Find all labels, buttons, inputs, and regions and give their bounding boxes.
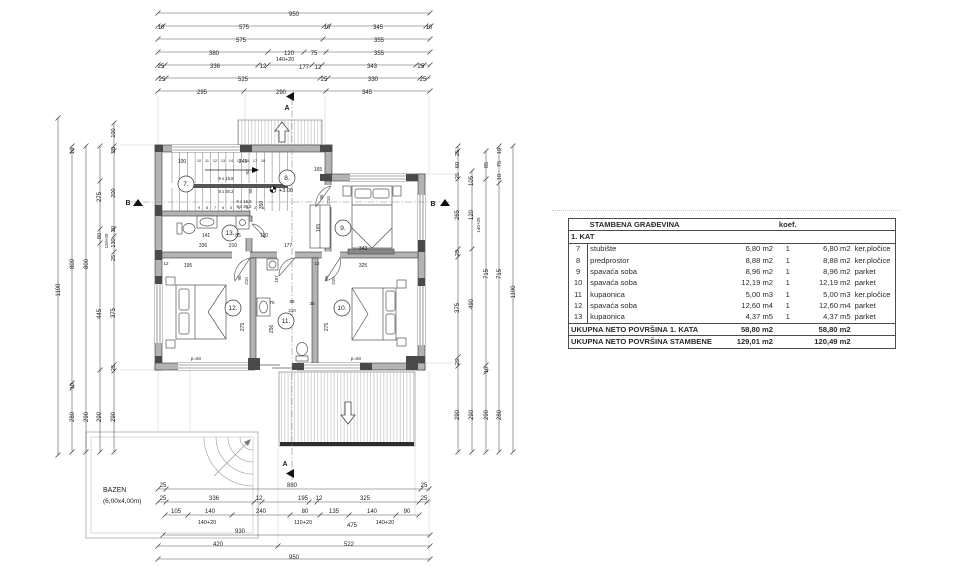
terrace — [279, 372, 415, 446]
dim-label: 120 — [469, 209, 475, 220]
cell-name: kupaonica — [588, 312, 724, 324]
dim-label: 25 — [321, 77, 328, 83]
dim-label: 15 — [237, 159, 241, 163]
dim-label: 375 — [455, 302, 461, 313]
dim-label: 380 — [209, 51, 220, 57]
dim-label: 336 — [210, 64, 221, 70]
table-title-row: STAMBENA GRAĐEVINA koef. — [569, 219, 896, 231]
dim-label: 280 — [497, 409, 503, 420]
dim-label: 92 — [245, 169, 250, 175]
dim-label: 177 — [299, 65, 310, 71]
cell-num: 7 — [569, 243, 588, 255]
dim-label: 110 — [260, 233, 268, 239]
dim-label: 290 — [97, 411, 103, 422]
dim-label: 90 — [404, 509, 411, 515]
dim-label: 135 — [329, 509, 340, 515]
dim-label: 210 — [288, 308, 296, 313]
dim-label: 200 — [111, 188, 117, 197]
dim-label: 5 — [230, 206, 232, 210]
cell-floor: parket — [853, 266, 896, 277]
dim-label: 445 — [97, 308, 103, 319]
total-floor-row: UKUPNA NETO POVRŠINA 1. KATA 58,80 m2 58… — [569, 324, 896, 336]
dim-label: p=60 — [191, 356, 202, 361]
cell-area: 12,19 m2 — [724, 278, 775, 289]
cell-num: 12 — [569, 300, 588, 311]
dim-label: 343 — [359, 246, 368, 252]
dim-label: B — [125, 200, 130, 207]
dim-label: 20 — [111, 226, 117, 232]
cell-area: 8,88 m2 — [724, 255, 775, 266]
table-title: STAMBENA GRAĐEVINA — [588, 219, 724, 231]
dim-label: 177 — [284, 243, 293, 249]
dim-label: +3.00 — [279, 188, 293, 194]
dim-label: 12 — [314, 261, 320, 266]
cell-area: 4,37 m5 — [724, 312, 775, 324]
cell-area: 6,80 m2 — [724, 243, 775, 255]
dim-label: 10 — [158, 25, 165, 31]
level-marker — [270, 187, 276, 193]
dim-label: 3 — [246, 206, 248, 210]
table-body: 7stubište6,80 m216,80 m2ker.pločice8pred… — [569, 243, 896, 323]
cell-area2: 6,80 m2 — [801, 243, 853, 255]
dim-label: 345 — [373, 25, 384, 31]
table-row: 8predprostor8,88 m218,88 m2ker.pločice — [569, 255, 896, 266]
cell-floor: parket — [853, 312, 896, 324]
dim-label: 35 — [309, 301, 315, 306]
dim-label: 575 — [236, 38, 247, 44]
dim-label: 7 — [214, 206, 216, 210]
dim-label: 140+20 — [276, 57, 295, 63]
dim-label: 475 — [347, 523, 358, 529]
floor-plan-sheet: 9501057510345105753553801207535525336121… — [0, 0, 960, 582]
dim-label: 107 — [274, 275, 279, 283]
stair-direction-arrow — [252, 167, 259, 173]
dim-label: 350 — [259, 201, 265, 210]
cell-koef: 1 — [775, 289, 800, 300]
dim-label: 10 — [70, 383, 76, 389]
dim-label: 25 — [160, 496, 167, 502]
cell-floor: parket — [853, 300, 896, 311]
cell-koef: 1 — [775, 266, 800, 277]
section-a-bottom-arrow — [286, 469, 294, 478]
dim-label: 275 — [97, 191, 103, 202]
dim-label: 25 — [455, 150, 461, 156]
dim-label: 275 — [240, 323, 246, 332]
dim-label: 343 — [367, 64, 378, 70]
dim-label: 10 — [484, 367, 490, 373]
dim-label: 165 — [316, 224, 322, 233]
cell-area2: 8,88 m2 — [801, 255, 853, 266]
dim-label: 25 — [455, 250, 461, 256]
total-building-area: 129,01 m2 — [724, 336, 775, 348]
dim-label: 420 — [213, 542, 224, 548]
dim-label: 11. — [282, 318, 291, 325]
cell-area2: 4,37 m5 — [801, 312, 853, 324]
dim-label: 280 — [70, 411, 76, 422]
cell-area2: 12,60 m4 — [801, 300, 853, 311]
dim-label: 1100 — [56, 283, 62, 297]
dim-label: 9 — [198, 206, 200, 210]
dim-label: 140+20 — [376, 520, 395, 526]
dim-label: 210 — [326, 196, 331, 204]
dim-label: 25 — [111, 255, 117, 261]
dim-label: 17 — [253, 159, 257, 163]
dim-label: 141 — [202, 233, 211, 239]
dim-label: 7. — [183, 181, 189, 188]
table-top-dotted-rule — [552, 210, 900, 211]
dim-label: 25 — [420, 77, 427, 83]
cell-floor: ker.pločice — [853, 255, 896, 266]
pool — [86, 432, 258, 538]
cell-area: 5,00 m3 — [724, 289, 775, 300]
dim-label: 140 — [205, 509, 216, 515]
dim-label: A — [282, 461, 287, 468]
dim-label: 9. — [340, 225, 346, 232]
dim-label: 275 — [324, 323, 330, 332]
table-row: 11kupaonica5,00 m315,00 m3ker.pločice — [569, 289, 896, 300]
dim-label: 25 — [421, 496, 428, 502]
dim-label: 210 — [244, 277, 249, 285]
cell-name: stubište — [588, 243, 724, 255]
dim-label: 60 — [455, 162, 461, 168]
total-building-area2: 120,49 m2 — [801, 336, 853, 348]
dim-label: 290 — [84, 411, 90, 422]
total-building-label: UKUPNA NETO POVRŠINA STAMBENE — [569, 336, 725, 348]
dim-label: 355 — [374, 51, 385, 57]
table-row: 10spavaća soba12,19 m2112,19 m2parket — [569, 278, 896, 289]
dim-label: 256 — [269, 325, 275, 334]
cell-floor: parket — [853, 278, 896, 289]
cell-name: kupaonica — [588, 289, 724, 300]
cell-num: 10 — [569, 278, 588, 289]
dim-label: 325 — [359, 263, 368, 269]
dim-label: A — [284, 105, 289, 112]
cell-name: spavaća soba — [588, 278, 724, 289]
total-floor-area2: 58,80 m2 — [801, 324, 853, 336]
dim-label: 110+20 — [104, 233, 109, 248]
dim-label: 25 — [111, 147, 117, 153]
dim-label: 8 x 30,2 — [219, 189, 235, 194]
cell-koef: 1 — [775, 312, 800, 324]
dim-label: 330 — [368, 77, 379, 83]
dim-label: 75 — [497, 161, 503, 167]
dim-label: 210 — [331, 277, 336, 285]
cell-koef: 1 — [775, 278, 800, 289]
dim-label: 75 — [311, 51, 318, 57]
dim-label: 105 — [469, 175, 475, 186]
dim-label: 355 — [374, 38, 385, 44]
dim-label: 25 — [455, 173, 461, 179]
dim-label: 12 — [315, 65, 322, 71]
dim-label: 290 — [111, 411, 117, 422]
dim-label: 800 — [84, 258, 90, 269]
dim-label: BAZEN — [103, 487, 126, 494]
dim-label: 12 — [316, 496, 323, 502]
total-floor-label: UKUPNA NETO POVRŠINA 1. KATA — [569, 324, 725, 336]
dim-label: 110+20 — [294, 520, 312, 526]
total-floor-area: 58,80 m2 — [724, 324, 775, 336]
dim-label: 25 — [455, 359, 461, 365]
dim-label: 522 — [344, 542, 355, 548]
dim-label: 12 — [213, 159, 217, 163]
dim-label: 210 — [229, 243, 238, 249]
dim-label: 140+20 — [198, 520, 217, 526]
dim-label: 25 — [421, 483, 428, 489]
area-table: STAMBENA GRAĐEVINA koef. 1. KAT 7stubišt… — [568, 218, 896, 349]
dim-label: 80 — [302, 509, 309, 515]
balcony — [238, 120, 322, 145]
dim-label: 80 — [97, 233, 103, 239]
cell-floor: ker.pločice — [853, 243, 896, 255]
dim-label: 105 — [171, 509, 182, 515]
cell-area: 8,96 m2 — [724, 266, 775, 277]
dim-label: 14 — [229, 159, 233, 163]
cell-num: 13 — [569, 312, 588, 324]
dim-label: 715 — [497, 268, 503, 279]
dim-label: 525 — [238, 77, 249, 83]
dim-label: 13. — [225, 230, 234, 237]
dim-label: 12 — [256, 496, 263, 502]
cell-koef: 1 — [775, 243, 800, 255]
dim-label: 490 — [469, 298, 475, 309]
dim-label: 10 — [426, 25, 433, 31]
total-building-row: UKUPNA NETO POVRŠINA STAMBENE 129,01 m2 … — [569, 336, 896, 348]
table-row: 12spavaća soba12,60 m4112,60 m4parket — [569, 300, 896, 311]
dim-label: 325 — [360, 496, 371, 502]
dim-label: 950 — [289, 12, 300, 18]
dim-label: 336 — [209, 496, 220, 502]
dim-label: 950 — [289, 555, 300, 561]
area-table-grid: STAMBENA GRAĐEVINA koef. 1. KAT 7stubišt… — [568, 218, 896, 349]
dim-label: 800 — [70, 258, 76, 269]
dim-label: 290 — [455, 409, 461, 420]
dim-label: 12 — [260, 64, 267, 70]
dim-label: 2 — [254, 206, 256, 210]
dim-label: 290 — [276, 90, 287, 96]
cell-area2: 12,19 m2 — [801, 278, 853, 289]
cell-koef: 1 — [775, 300, 800, 311]
dim-label: B — [430, 201, 435, 208]
dim-label: 85 — [235, 233, 241, 239]
dim-label: 12 — [163, 261, 169, 266]
cell-name: spavaća soba — [588, 300, 724, 311]
section-b-right-arrow — [440, 199, 450, 206]
dim-label: 18 — [261, 159, 265, 163]
cell-name: predprostor — [588, 255, 724, 266]
dim-label: 375 — [111, 307, 117, 318]
dim-label: 8 — [206, 206, 208, 210]
table-row: 7stubište6,80 m216,80 m2ker.pločice — [569, 243, 896, 255]
dim-label: 575 — [239, 25, 250, 31]
dim-label: 25 — [418, 64, 425, 70]
dim-label: 11 — [205, 159, 209, 163]
dim-label: 6 — [222, 206, 224, 210]
floor-section-row: 1. KAT — [569, 231, 896, 243]
dim-label: 13 — [221, 159, 225, 163]
dim-label: 290 — [484, 409, 490, 420]
dim-label: 10 — [497, 174, 503, 180]
cell-num: 8 — [569, 255, 588, 266]
dim-label: 100 — [178, 159, 187, 165]
cell-area: 12,60 m4 — [724, 300, 775, 311]
dim-label: 10 — [324, 25, 331, 31]
dim-label: 4 — [238, 206, 240, 210]
dim-label: 10. — [337, 305, 346, 312]
dim-label: 240 — [256, 509, 267, 515]
dim-label: 16 — [245, 159, 249, 163]
dim-label: 165 — [314, 167, 323, 173]
dim-label: 10 — [197, 159, 201, 163]
table-row: 13kupaonica4,37 m514,37 m5parket — [569, 312, 896, 324]
cell-area2: 8,96 m2 — [801, 266, 853, 277]
dim-label: (6,00x4,00m) — [103, 498, 141, 505]
dim-label: 25 — [159, 77, 166, 83]
dim-label: 75 — [269, 300, 275, 305]
dim-label: 140 — [367, 509, 378, 515]
section-a-top-arrow — [286, 92, 294, 101]
dim-label: 25 — [160, 483, 167, 489]
dim-label: 95 — [324, 275, 329, 281]
koef-header: koef. — [775, 219, 800, 231]
dim-label: 25 — [111, 365, 117, 371]
dim-label: 195 — [184, 263, 193, 269]
dim-label: 10 — [497, 148, 503, 154]
dim-label: 95 — [319, 194, 324, 200]
dim-label: 1100 — [511, 285, 517, 299]
cell-koef: 1 — [775, 255, 800, 266]
dim-label: 140+20 — [476, 217, 481, 233]
dim-label: p=60 — [351, 356, 362, 361]
section-b-left-arrow — [133, 199, 143, 206]
cell-floor: ker.pločice — [853, 289, 896, 300]
cell-num: 9 — [569, 266, 588, 277]
dim-label: 8. — [284, 175, 290, 182]
dim-label: 95 — [248, 188, 253, 194]
dim-label: 336 — [199, 243, 208, 249]
dim-label: 195 — [298, 496, 309, 502]
dim-label: 12. — [228, 305, 237, 312]
dim-label: 95 — [237, 275, 242, 281]
dim-label: 85 — [289, 299, 295, 304]
cell-num: 11 — [569, 289, 588, 300]
floor-section-label: 1. KAT — [569, 231, 896, 243]
dim-label: 290 — [469, 409, 475, 420]
dim-label: 880 — [287, 483, 298, 489]
dim-label: 10 — [70, 148, 76, 154]
dim-label: 100 — [111, 128, 117, 137]
dim-label: 345 — [362, 90, 373, 96]
dim-label: 25 — [158, 64, 165, 70]
cell-name: spavaća soba — [588, 266, 724, 277]
cell-area2: 5,00 m3 — [801, 289, 853, 300]
dim-label: 930 — [235, 529, 246, 535]
dim-label: 265 — [455, 209, 461, 220]
dim-label: 85 — [484, 162, 490, 168]
dim-label: 295 — [197, 90, 208, 96]
dim-label: 9 x 16,8 — [219, 176, 235, 181]
dim-label: 130 — [111, 238, 117, 247]
table-row: 9spavaća soba8,96 m218,96 m2parket — [569, 266, 896, 277]
dim-label: 715 — [484, 268, 490, 279]
